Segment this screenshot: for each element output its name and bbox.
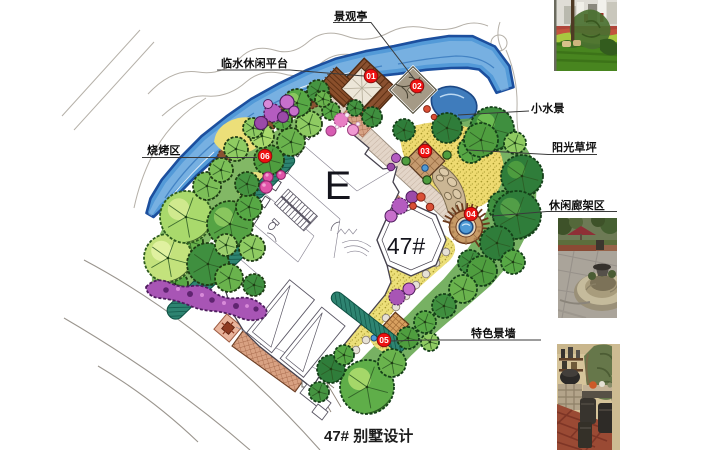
svg-text:47#: 47# — [387, 233, 426, 259]
svg-text:景观亭: 景观亭 — [333, 9, 368, 23]
svg-text:06: 06 — [260, 151, 270, 161]
svg-text:E: E — [325, 164, 352, 208]
svg-text:特色景墙: 特色景墙 — [471, 326, 516, 340]
svg-text:阳光草坪: 阳光草坪 — [552, 140, 597, 154]
svg-text:烧烤区: 烧烤区 — [147, 143, 181, 157]
svg-text:03: 03 — [420, 146, 430, 156]
svg-text:47# 别墅设计: 47# 别墅设计 — [324, 427, 413, 445]
svg-text:临水休闲平台: 临水休闲平台 — [221, 56, 288, 70]
svg-text:05: 05 — [379, 335, 389, 345]
svg-text:休闲廊架区: 休闲廊架区 — [548, 198, 605, 212]
svg-text:02: 02 — [412, 81, 422, 91]
svg-text:04: 04 — [466, 209, 476, 219]
svg-text:01: 01 — [366, 71, 376, 81]
svg-text:小水景: 小水景 — [530, 101, 565, 115]
